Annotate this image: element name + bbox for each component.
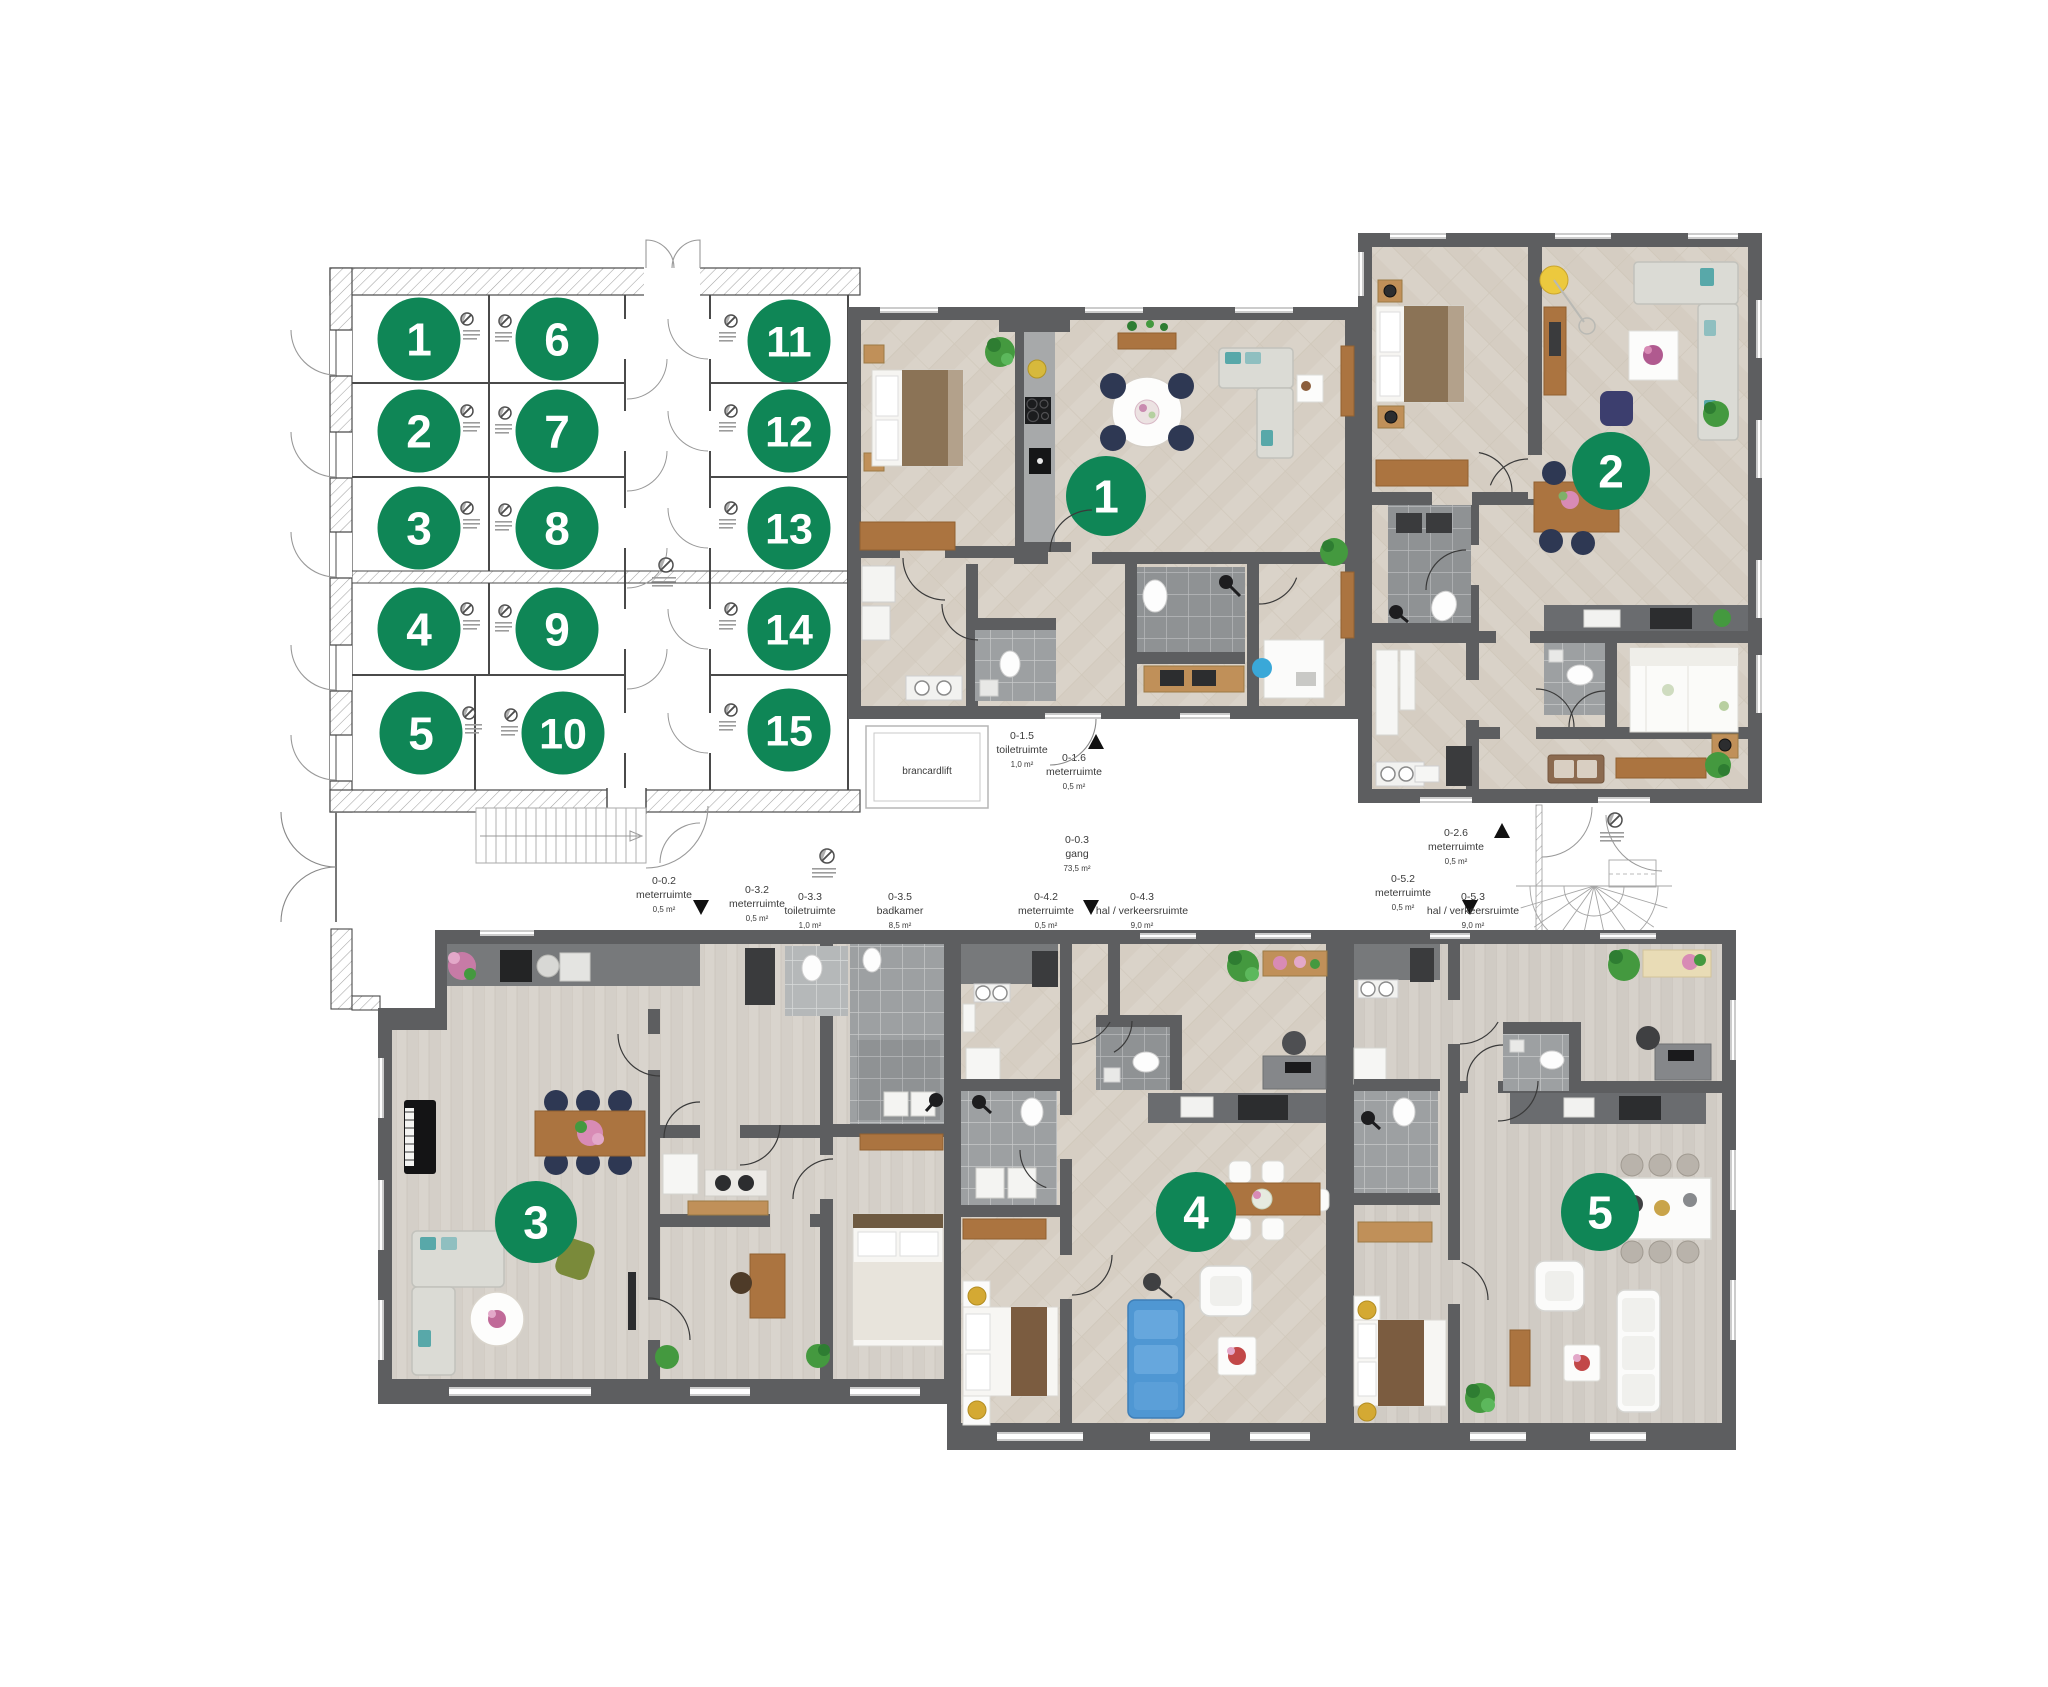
svg-text:15: 15 (765, 707, 813, 755)
svg-text:0-3.3: 0-3.3 (798, 891, 822, 903)
svg-text:1: 1 (406, 314, 432, 366)
svg-text:gang: gang (1065, 848, 1089, 860)
svg-text:0-3.5: 0-3.5 (888, 891, 912, 903)
svg-text:0-2.6: 0-2.6 (1444, 827, 1468, 839)
svg-text:9,0 m²: 9,0 m² (1462, 921, 1485, 930)
svg-text:0-4.3: 0-4.3 (1130, 891, 1154, 903)
svg-text:9: 9 (544, 604, 570, 656)
svg-text:13: 13 (765, 505, 813, 553)
svg-text:0-4.2: 0-4.2 (1034, 891, 1058, 903)
svg-text:8: 8 (544, 503, 570, 555)
svg-text:5: 5 (408, 708, 434, 760)
svg-text:meterruimte: meterruimte (1046, 766, 1102, 778)
svg-text:2: 2 (1598, 446, 1624, 498)
svg-text:meterruimte: meterruimte (729, 898, 785, 910)
svg-text:0,5 m²: 0,5 m² (653, 905, 676, 914)
svg-text:1,0 m²: 1,0 m² (799, 921, 822, 930)
svg-text:3: 3 (523, 1197, 549, 1249)
svg-text:73,5 m²: 73,5 m² (1063, 864, 1090, 873)
svg-text:9,0 m²: 9,0 m² (1131, 921, 1154, 930)
svg-text:4: 4 (406, 604, 432, 656)
svg-text:meterruimte: meterruimte (1428, 841, 1484, 853)
svg-text:brancardlift: brancardlift (902, 766, 952, 777)
svg-text:14: 14 (765, 606, 813, 654)
svg-text:6: 6 (544, 314, 570, 366)
svg-text:meterruimte: meterruimte (1375, 887, 1431, 899)
svg-text:0-1.5: 0-1.5 (1010, 730, 1034, 742)
svg-text:hal / verkeersruimte: hal / verkeersruimte (1096, 905, 1188, 917)
svg-text:7: 7 (544, 406, 570, 458)
svg-text:0-5.2: 0-5.2 (1391, 873, 1415, 885)
svg-text:1: 1 (1093, 471, 1119, 523)
svg-text:8,5 m²: 8,5 m² (889, 921, 912, 930)
svg-text:meterruimte: meterruimte (636, 889, 692, 901)
svg-text:0,5 m²: 0,5 m² (1063, 782, 1086, 791)
svg-text:0,5 m²: 0,5 m² (1445, 857, 1468, 866)
svg-text:0,5 m²: 0,5 m² (1035, 921, 1058, 930)
svg-text:0-3.2: 0-3.2 (745, 884, 769, 896)
svg-text:12: 12 (765, 408, 813, 456)
svg-text:0,5 m²: 0,5 m² (1392, 903, 1415, 912)
svg-text:hal / verkeersruimte: hal / verkeersruimte (1427, 905, 1519, 917)
svg-text:0-5.3: 0-5.3 (1461, 891, 1485, 903)
svg-text:11: 11 (766, 318, 811, 366)
svg-text:meterruimte: meterruimte (1018, 905, 1074, 917)
svg-text:toiletruimte: toiletruimte (784, 905, 836, 917)
svg-text:0,5 m²: 0,5 m² (746, 914, 769, 923)
svg-text:0-0.2: 0-0.2 (652, 875, 676, 887)
svg-text:3: 3 (406, 503, 432, 555)
svg-text:toiletruimte: toiletruimte (996, 744, 1048, 756)
svg-text:10: 10 (539, 710, 587, 758)
svg-text:badkamer: badkamer (877, 905, 924, 917)
svg-text:2: 2 (406, 406, 432, 458)
svg-text:5: 5 (1587, 1187, 1613, 1239)
svg-text:4: 4 (1183, 1187, 1209, 1239)
svg-text:0-0.3: 0-0.3 (1065, 834, 1089, 846)
svg-text:1,0 m²: 1,0 m² (1011, 760, 1034, 769)
